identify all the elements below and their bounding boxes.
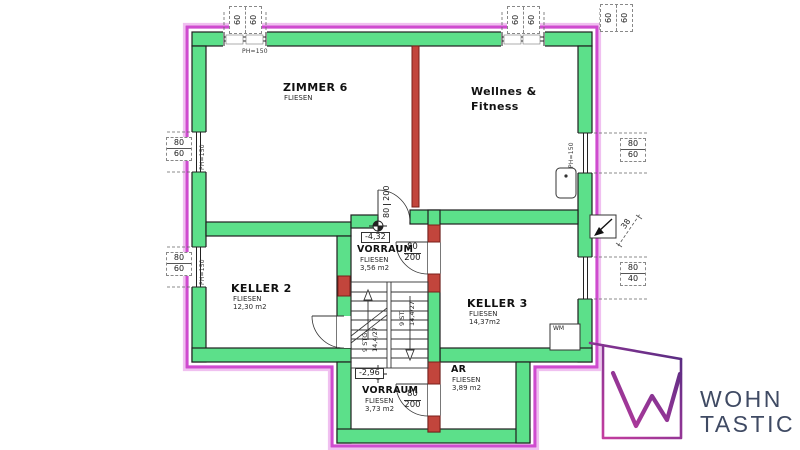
ph-label-left1: PH=150 [200, 144, 206, 170]
window-dim-top2: 6060 [507, 6, 540, 34]
floorplan-drawing [0, 0, 800, 450]
window-dim-left2: 8060 [166, 252, 192, 276]
room-label-wellness-2: Fitness [471, 101, 519, 113]
ph-label-top1: PH=150 [242, 49, 268, 55]
window-dim-top3: 6060 [600, 4, 633, 32]
level-marker-lower: -2,96 [355, 368, 384, 379]
washbasin [556, 168, 576, 198]
logo-wordmark-line1: WOHN [700, 388, 783, 411]
floorplan-page: ZIMMER 6 FLIESEN Wellnes & Fitness -4,32… [0, 0, 800, 450]
room-area-vorraum-upper: 3,56 m2 [360, 265, 389, 273]
room-label-keller3: KELLER 3 [467, 298, 528, 310]
room-area-keller2: 12,30 m2 [233, 304, 267, 312]
room-finish-zimmer6: FLIESEN [284, 95, 313, 103]
ph-label-right1: PH=150 [569, 142, 575, 168]
room-area-vorraum-lower: 3,73 m2 [365, 406, 394, 414]
window-dim-left1: 8060 [166, 137, 192, 161]
door-dim-ar: 80200 [404, 390, 421, 411]
window-dim-right2: 8040 [620, 262, 646, 286]
washing-machine-label: WM [553, 326, 564, 332]
room-area-ar: 3,89 m2 [452, 385, 481, 393]
window-dim-top1: 6060 [229, 6, 262, 34]
room-label-keller2: KELLER 2 [231, 283, 292, 295]
window-dim-right1: 8060 [620, 138, 646, 162]
logo-wordmark-line2: TASTIC [700, 413, 795, 436]
ph-label-left2: PH=150 [200, 259, 206, 285]
level-marker-upper: -4,32 [361, 232, 390, 243]
fixtures [550, 168, 580, 350]
door-dim-keller3: 80200 [404, 243, 421, 264]
room-label-zimmer6: ZIMMER 6 [283, 82, 348, 94]
room-label-wellness-1: Wellnes & [471, 86, 537, 98]
door-dim-top: 80200 [383, 186, 391, 218]
wohntastic-logo-mark [590, 343, 681, 438]
room-label-ar: AR [451, 365, 466, 375]
stair-note-right: 9 ST. 14,4/27 [397, 301, 417, 326]
stair-note-left: 9 STG. 14,4/27 [360, 327, 380, 352]
room-area-keller3: 14,37m2 [469, 319, 500, 327]
